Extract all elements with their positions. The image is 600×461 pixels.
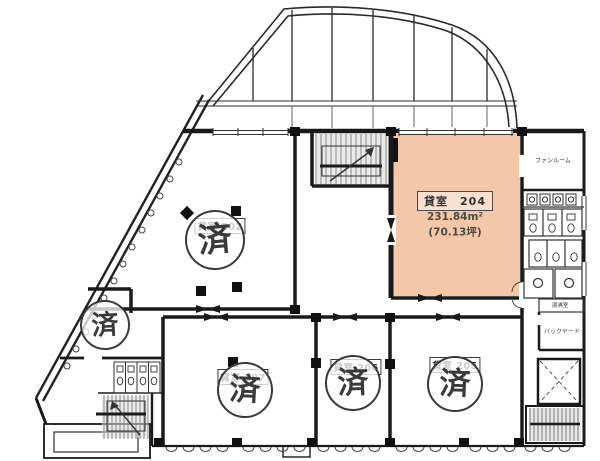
backyard-label: バックヤード [544,327,580,336]
room-204-area-m2: 231.84m² [427,211,483,223]
staircase-bottom-right [526,406,584,443]
staircase-bottom-left [96,395,148,439]
hot-water-room-label: 湯沸室 [552,301,569,309]
staircase-top-center [316,134,388,184]
floor-plan: 貸室 202 貸室 207 貸室 206 貸室 205 貸室 204 231.8… [0,0,600,461]
room-204-label: 貸室 204 [417,191,493,211]
room-204-area-tsubo: (70.13坪) [428,225,481,240]
floor-plan-linework [0,0,600,461]
arched-roof [196,7,517,128]
elevator [538,359,580,404]
fan-room-label: ファンルーム [535,156,571,165]
toilets-bottom-left [114,362,160,393]
diagonal-wall [36,95,209,401]
south-windows [166,447,570,452]
